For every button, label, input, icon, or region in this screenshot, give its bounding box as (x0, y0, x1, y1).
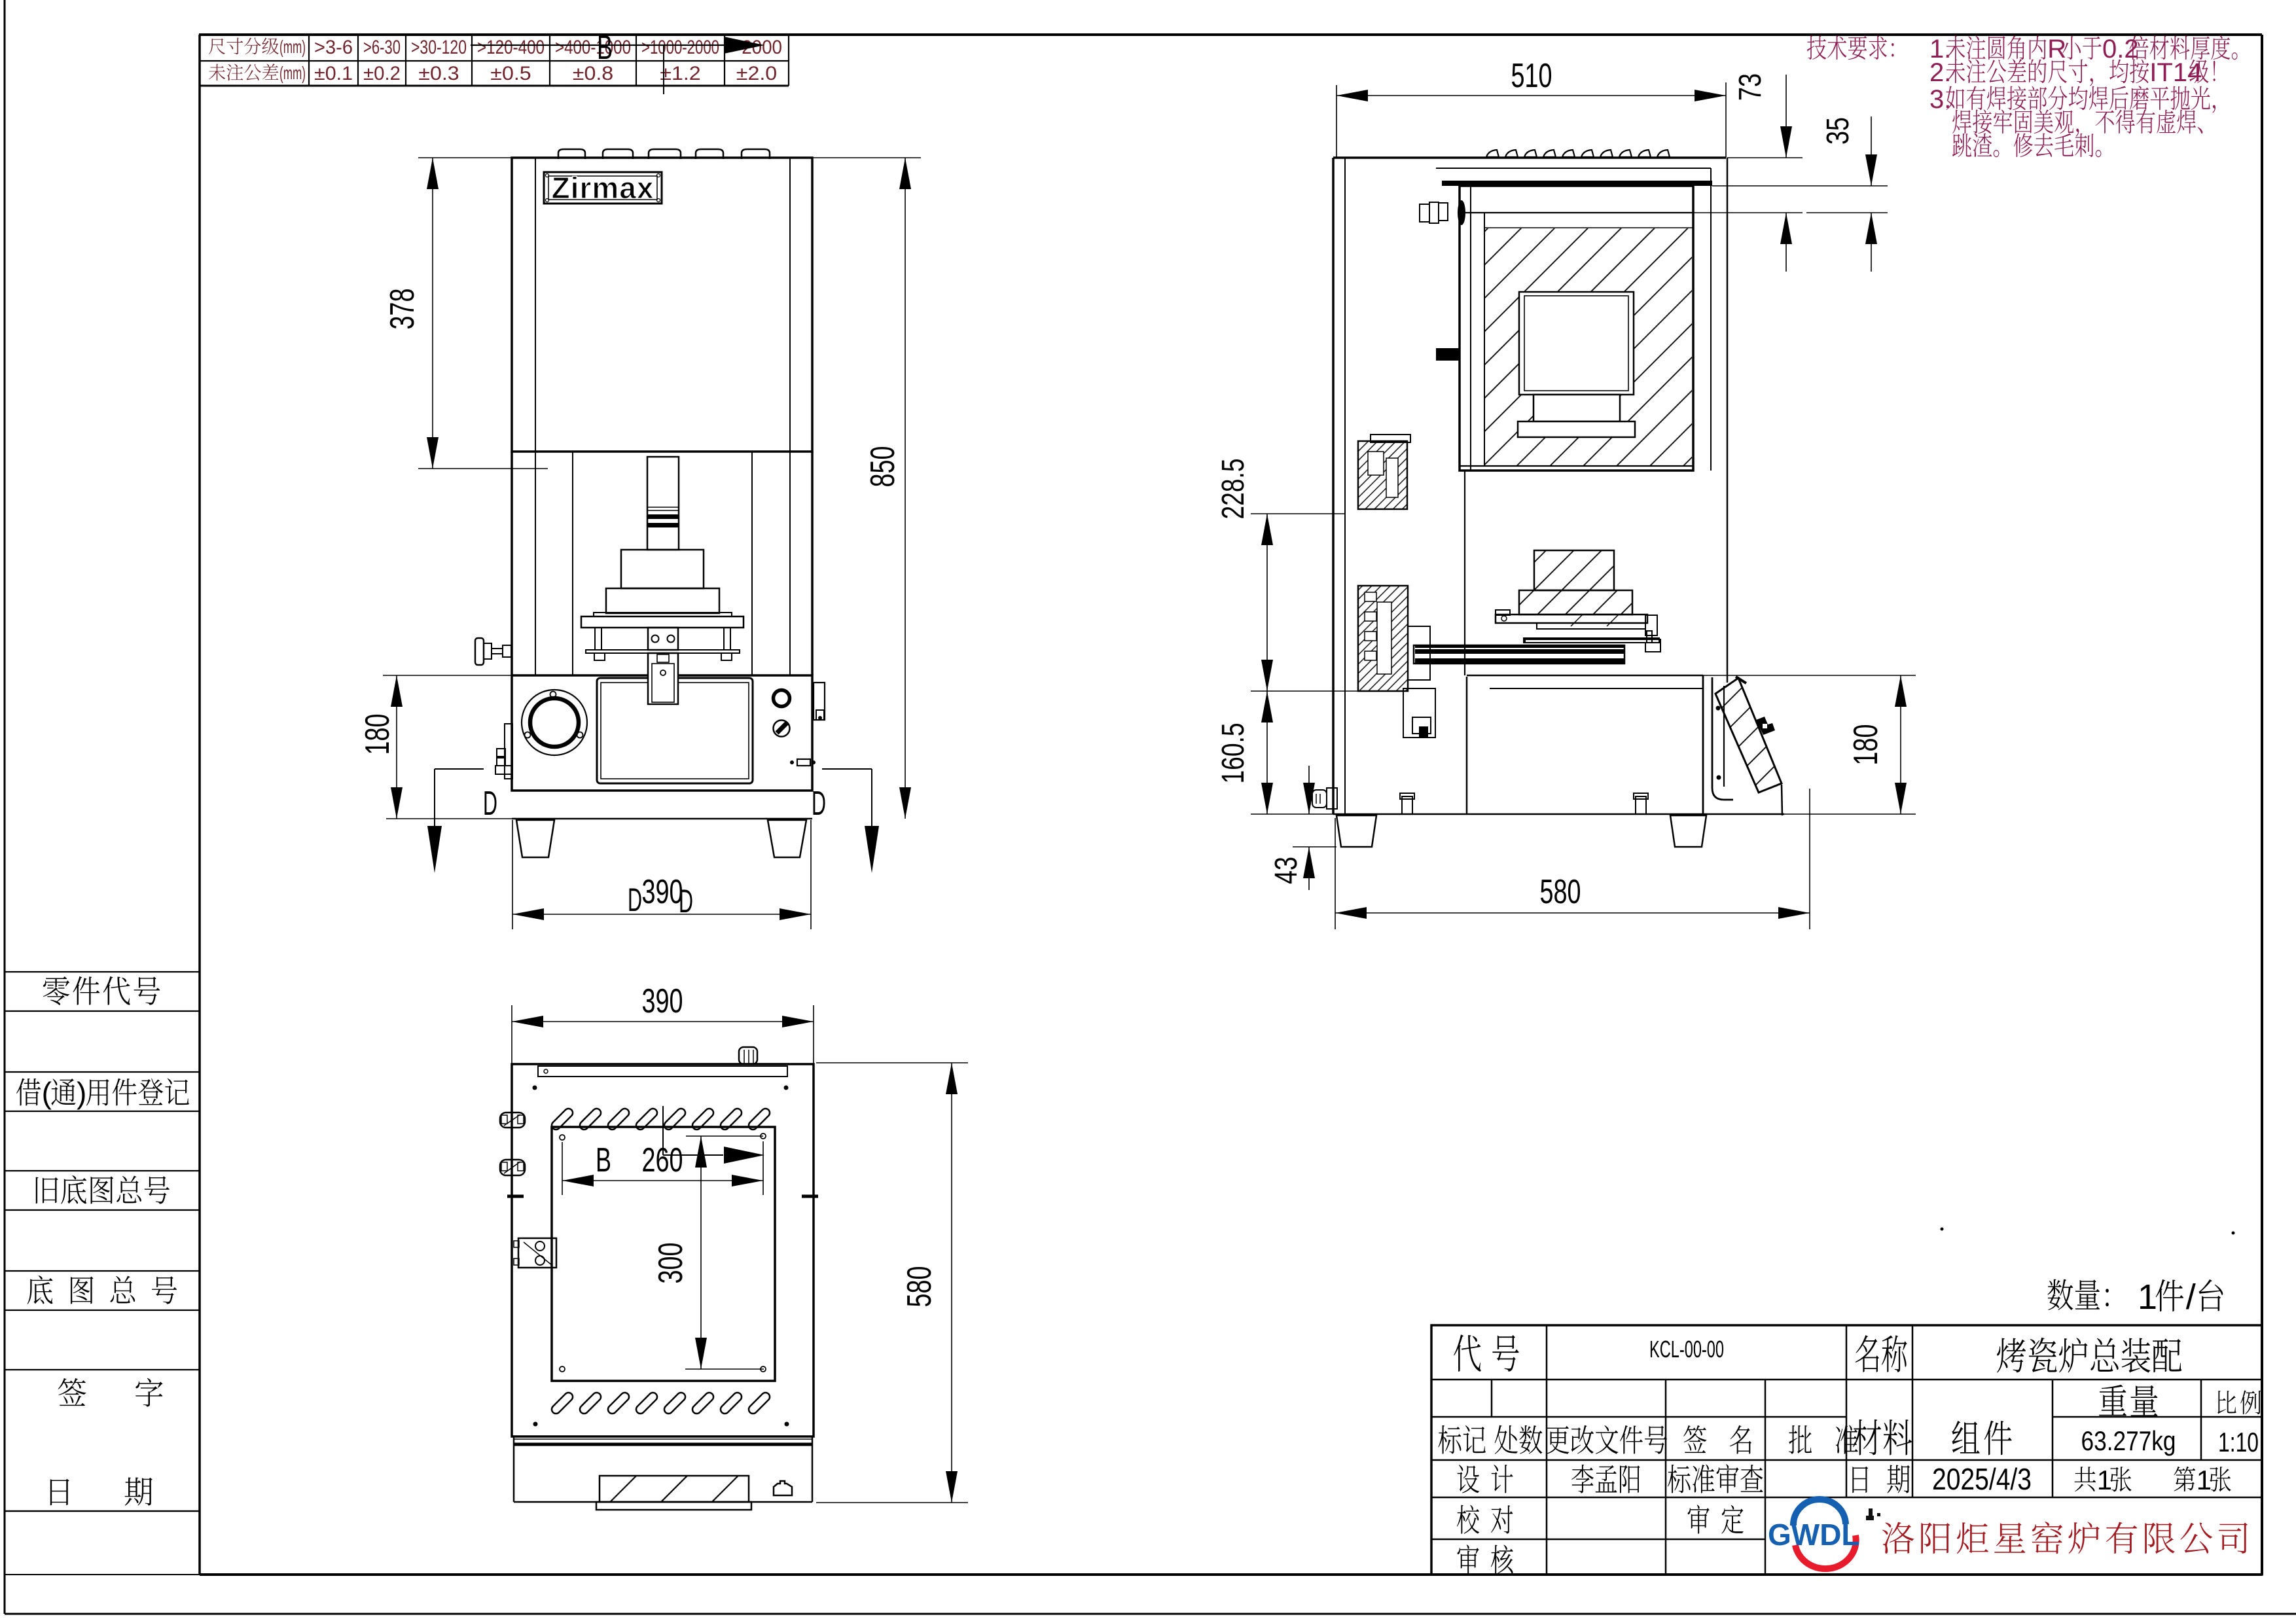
svg-text:63.277kg: 63.277kg (2081, 1425, 2176, 1456)
svg-text:±0.3: ±0.3 (418, 63, 459, 84)
svg-text:260: 260 (642, 1141, 683, 1179)
svg-text:180: 180 (359, 714, 397, 755)
svg-text:): ) (77, 1076, 86, 1110)
svg-text:2025/4/3: 2025/4/3 (1932, 1462, 2032, 1496)
svg-text:1: 1 (2097, 1465, 2112, 1495)
svg-text:±1.2: ±1.2 (660, 63, 700, 84)
svg-text:B: B (597, 29, 613, 67)
svg-text:850: 850 (864, 446, 902, 488)
svg-text:73: 73 (1733, 73, 1768, 101)
svg-text:1: 1 (2138, 1277, 2157, 1317)
svg-text:(mm): (mm) (279, 63, 306, 83)
svg-text:±0.1: ±0.1 (314, 63, 353, 84)
svg-text:2.: 2. (1929, 58, 1951, 87)
svg-text:>1000-2000: >1000-2000 (641, 37, 719, 58)
svg-text:>3-6: >3-6 (314, 37, 353, 58)
svg-text:±2.0: ±2.0 (736, 63, 777, 84)
svg-text:>400-1000: >400-1000 (555, 37, 631, 58)
svg-text:43: 43 (1269, 857, 1304, 884)
svg-text:IT14: IT14 (2149, 58, 2202, 87)
svg-text:510: 510 (1511, 57, 1552, 95)
svg-text:D: D (679, 883, 693, 919)
svg-text:180: 180 (1847, 724, 1885, 766)
svg-text:D: D (812, 785, 826, 823)
svg-text:580: 580 (901, 1266, 939, 1308)
svg-text:1: 1 (2197, 1465, 2212, 1495)
svg-text:(: ( (42, 1076, 52, 1110)
svg-text:±0.5: ±0.5 (490, 63, 531, 84)
svg-text:D: D (628, 882, 642, 918)
svg-text:R: R (2047, 35, 2066, 63)
svg-text:228.5: 228.5 (1216, 459, 1251, 520)
svg-text:±0.2: ±0.2 (363, 63, 401, 84)
svg-text:390: 390 (642, 873, 683, 911)
svg-text:35: 35 (1821, 117, 1856, 145)
svg-text:D: D (483, 785, 497, 823)
svg-text:>6-30: >6-30 (363, 37, 401, 58)
svg-text:378: 378 (384, 289, 422, 330)
svg-text:>120-400: >120-400 (477, 37, 545, 58)
svg-text:>30-120: >30-120 (411, 37, 467, 58)
svg-text:B: B (596, 1141, 611, 1179)
svg-text:300: 300 (652, 1243, 690, 1284)
svg-text:Zirmax: Zirmax (552, 171, 655, 205)
svg-text:/: / (2186, 1277, 2196, 1317)
svg-text:(mm): (mm) (279, 37, 306, 57)
svg-text:KCL-00-00: KCL-00-00 (1649, 1336, 1724, 1363)
svg-text:1:10: 1:10 (2218, 1427, 2259, 1457)
svg-text:580: 580 (1540, 873, 1581, 911)
svg-text:160.5: 160.5 (1216, 723, 1251, 784)
svg-text:390: 390 (642, 982, 683, 1020)
svg-text:GWDL: GWDL (1768, 1518, 1860, 1552)
